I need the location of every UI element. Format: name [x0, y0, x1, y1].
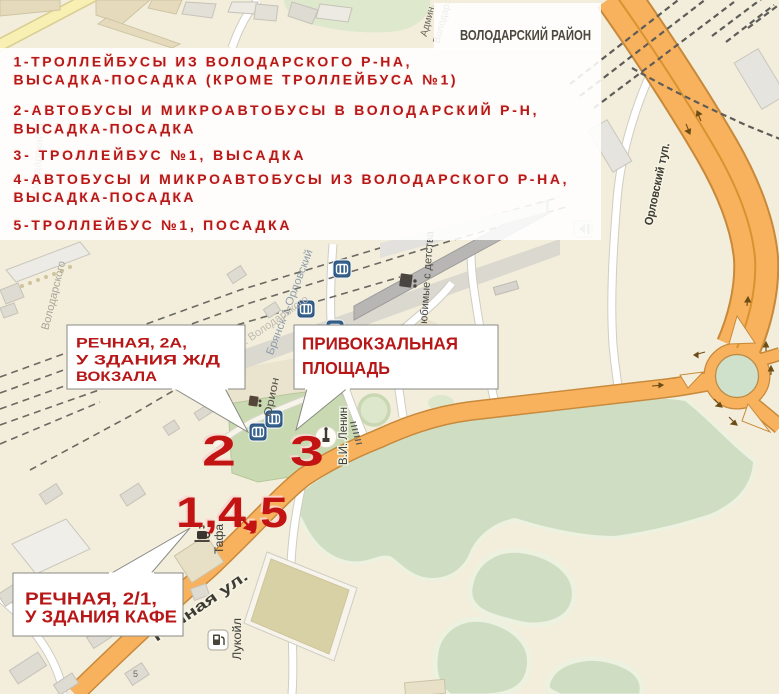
svg-text:РЕЧНАЯ, 2А,: РЕЧНАЯ, 2А,	[76, 335, 187, 351]
svg-text:У ЗДАНИЯ Ж/Д: У ЗДАНИЯ Ж/Д	[76, 352, 220, 368]
svg-text:ВОЛОДАРСКИЙ РАЙОН: ВОЛОДАРСКИЙ РАЙОН	[460, 26, 591, 44]
svg-text:У ЗДАНИЯ КАФЕ: У ЗДАНИЯ КАФЕ	[25, 607, 177, 627]
svg-text:5: 5	[133, 669, 138, 679]
svg-text:Лукойл: Лукойл	[232, 618, 244, 660]
svg-text:ПЛОЩАДЬ: ПЛОЩАДЬ	[302, 358, 390, 378]
svg-text:ПРИВОКЗАЛЬНАЯ: ПРИВОКЗАЛЬНАЯ	[302, 334, 458, 354]
svg-text:1,4,5: 1,4,5	[176, 489, 288, 537]
svg-text:3: 3	[290, 428, 324, 476]
svg-text:2: 2	[202, 428, 236, 476]
svg-text:5-ТРОЛЛЕЙБУС №1, ПОСАДКА: 5-ТРОЛЛЕЙБУС №1, ПОСАДКА	[14, 216, 290, 233]
svg-text:4-АВТОБУСЫ И МИКРОАВТОБУСЫ ИЗ: 4-АВТОБУСЫ И МИКРОАВТОБУСЫ ИЗ ВОЛОДАРСКО…	[14, 171, 567, 187]
svg-text:В.И. Ленин: В.И. Ленин	[336, 407, 350, 465]
svg-text:3- ТРОЛЛЕЙБУС №1, ВЫСАДКА: 3- ТРОЛЛЕЙБУС №1, ВЫСАДКА	[14, 146, 304, 163]
svg-text:РЕЧНАЯ, 2/1,: РЕЧНАЯ, 2/1,	[25, 589, 157, 609]
svg-text:1-ТРОЛЛЕЙБУСЫ ИЗ ВОЛОДАРСКОГО: 1-ТРОЛЛЕЙБУСЫ ИЗ ВОЛОДАРСКОГО Р-НА,	[14, 53, 410, 70]
svg-text:ВОКЗАЛА: ВОКЗАЛА	[76, 368, 157, 384]
